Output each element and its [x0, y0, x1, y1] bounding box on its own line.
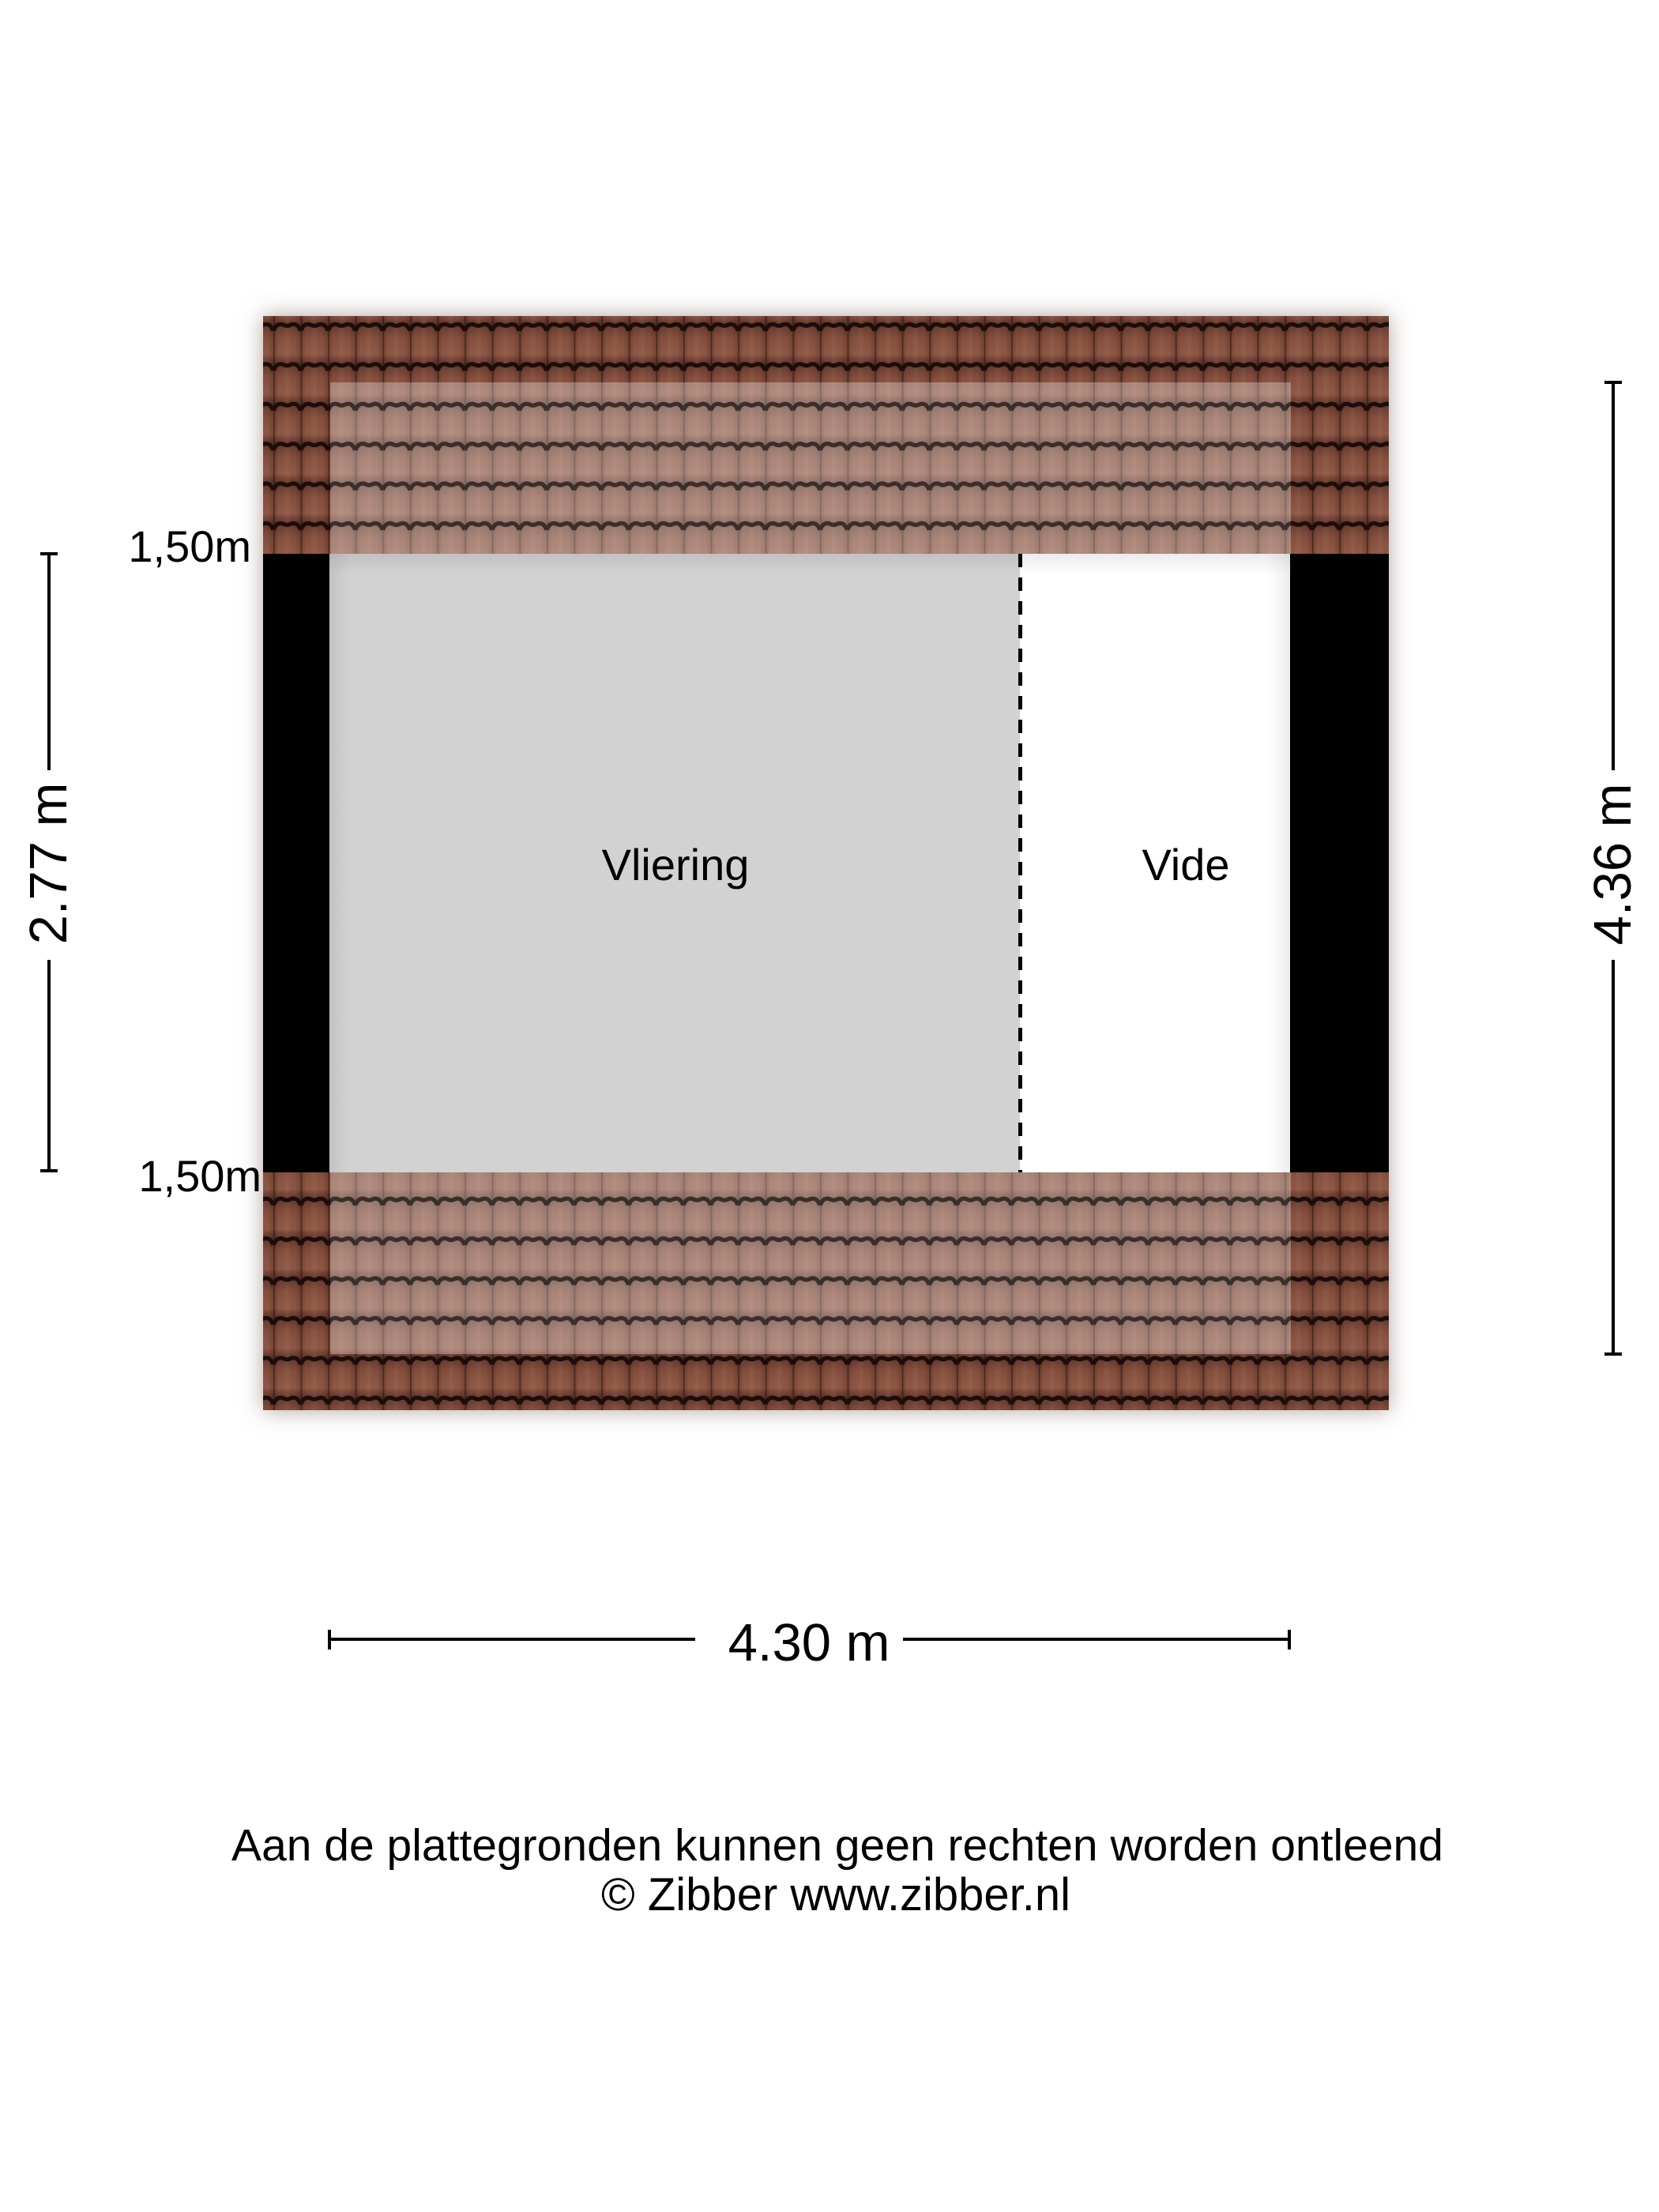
- svg-text:2.77 m: 2.77 m: [19, 783, 78, 945]
- svg-text:Aan de plattegronden kunnen ge: Aan de plattegronden kunnen geen rechten…: [231, 1820, 1443, 1871]
- svg-text:4.30 m: 4.30 m: [728, 1613, 890, 1672]
- svg-text:© Zibber www.zibber.nl: © Zibber www.zibber.nl: [601, 1869, 1070, 1920]
- svg-text:Vliering: Vliering: [602, 840, 750, 890]
- svg-text:Vide: Vide: [1142, 840, 1229, 890]
- svg-text:4.36 m: 4.36 m: [1583, 784, 1642, 946]
- svg-text:1,50m: 1,50m: [128, 521, 251, 571]
- svg-text:1,50m: 1,50m: [138, 1151, 261, 1201]
